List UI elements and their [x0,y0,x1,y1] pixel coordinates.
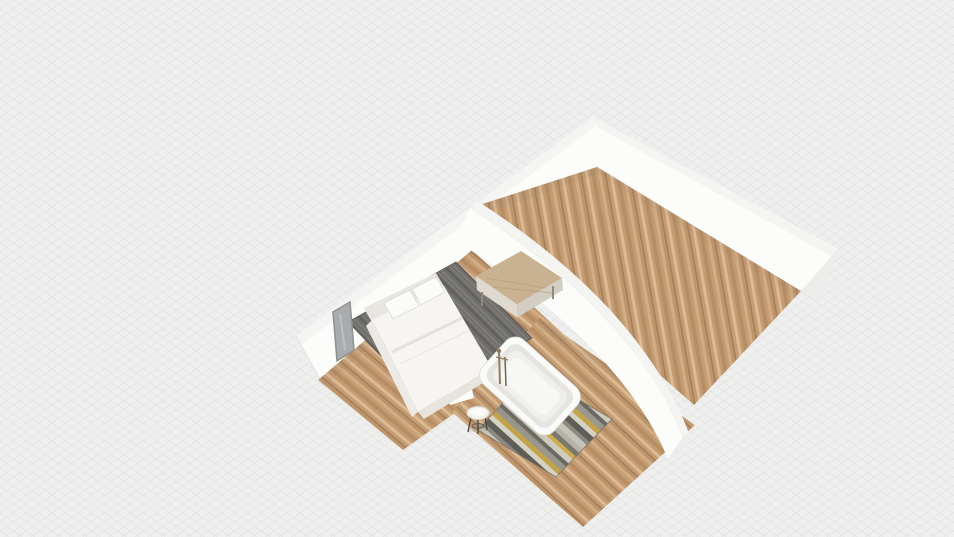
faucet-pipe [499,352,500,384]
floorplan-viewport [0,0,954,537]
mirror-glass [333,302,354,361]
wall-mirror[interactable] [333,302,354,361]
faucet-head [497,349,501,353]
stool-top-highlight [471,408,486,416]
faucet-hose [505,357,506,386]
side-stool[interactable] [467,407,489,435]
